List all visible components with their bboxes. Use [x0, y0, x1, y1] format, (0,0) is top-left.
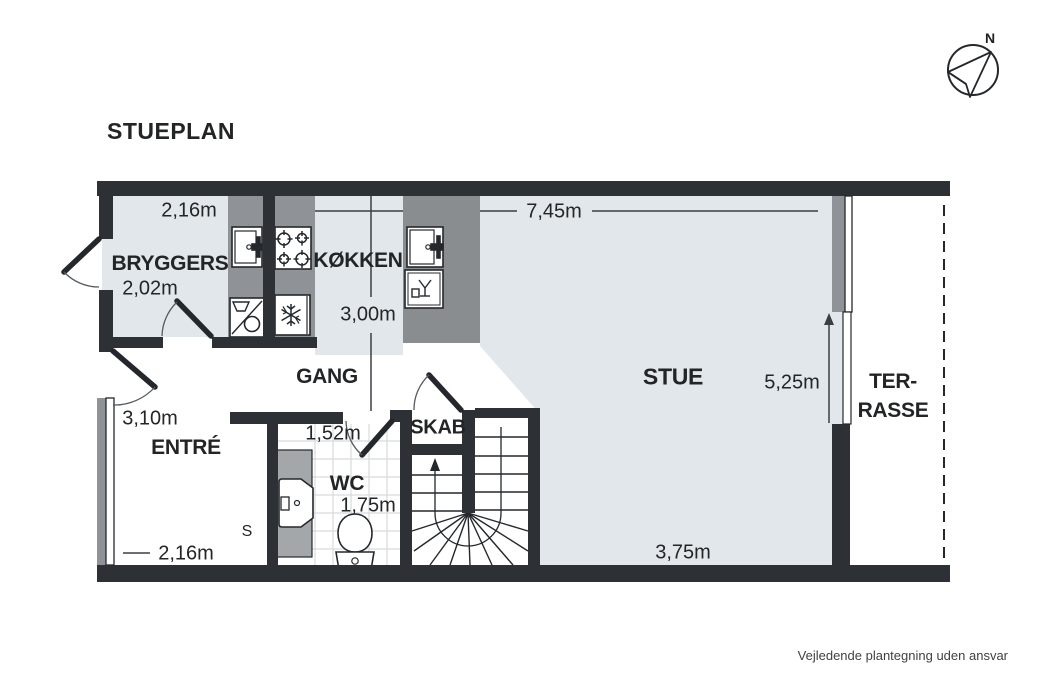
wall-west-upper: [99, 181, 113, 239]
wc-sink-icon: [279, 479, 313, 527]
stairs-winders: [412, 513, 528, 565]
measure-entre-bottom: 2,16m: [158, 543, 214, 566]
stue-window-frame: [832, 196, 845, 312]
room-label-wc: WC: [330, 472, 364, 496]
page-title: STUEPLAN: [107, 118, 235, 145]
compass-north-label: N: [985, 30, 995, 46]
stove-icon: [275, 227, 311, 269]
room-label-stue: STUE: [643, 364, 703, 391]
wall-entre-wc: [267, 412, 278, 565]
room-label-entre: ENTRÉ: [151, 436, 221, 460]
measure-bryggers-depth: 2,02m: [122, 278, 178, 301]
bryggers-exterior-door-leaf: [64, 239, 99, 272]
dishwasher-icon: [405, 270, 443, 308]
entre-front-door-leaf: [113, 351, 155, 387]
wall-stairs-east: [528, 410, 540, 565]
room-label-gang: GANG: [296, 365, 358, 389]
measure-wc-depth: 1,75m: [340, 495, 396, 518]
measure-kokken-depth: 3,00m: [340, 304, 396, 327]
freezer-icon: [275, 295, 310, 335]
kitchen-sink-icon: [407, 227, 443, 267]
kokken-floor: [315, 196, 403, 355]
wardrobe-label: S: [242, 523, 253, 541]
wall-north: [97, 181, 950, 196]
measure-wc-width: 1,52m: [305, 423, 361, 446]
toilet-icon: [336, 514, 374, 570]
entre-window-glass: [106, 398, 114, 565]
wall-south: [97, 565, 950, 582]
room-label-terrasse-line1: TER-: [869, 370, 917, 394]
wall-kokken-south: [212, 337, 317, 348]
wall-stue-east: [832, 424, 850, 565]
disclaimer-text: Vejledende plantegning uden ansvar: [798, 648, 1008, 663]
room-label-bryggers: BRYGGERS: [111, 252, 228, 276]
floorplan-page: STUEPLAN N 2,16m BRYGGERS 2,02m KØKKEN 3…: [0, 0, 1050, 700]
wall-bryggers-south-left: [113, 337, 163, 348]
measure-stue-width: 7,45m: [526, 201, 582, 224]
stue-window-glass: [845, 196, 852, 312]
stairs-direction-arrow: [430, 458, 440, 471]
wall-west-mid: [99, 290, 113, 352]
wall-bryggers-kokken: [263, 196, 275, 348]
measure-stue-depth: 5,25m: [764, 372, 820, 395]
room-label-terrasse-line2: RASSE: [858, 399, 929, 423]
washing-machine-icon: [230, 298, 264, 337]
room-label-kokken: KØKKEN: [313, 249, 402, 273]
entre-window-frame: [97, 398, 106, 565]
sink-icon: [232, 227, 262, 267]
room-label-skab: SKAB: [410, 417, 465, 440]
skab-door-leaf: [429, 375, 461, 410]
compass-icon: [948, 45, 998, 97]
measure-entre-width: 3,10m: [122, 408, 178, 431]
stue-glass-door: [843, 312, 851, 424]
floorplan-drawing: [0, 0, 1050, 700]
measure-stue-bottom: 3,75m: [655, 542, 711, 565]
measure-bryggers-width: 2,16m: [161, 200, 217, 223]
